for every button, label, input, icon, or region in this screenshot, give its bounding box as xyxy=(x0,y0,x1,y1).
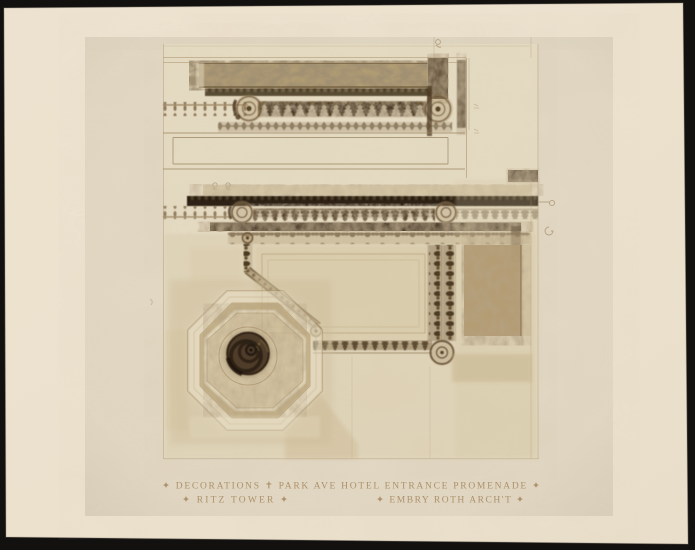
svg-text:✦ RITZ TOWER ✦: ✦ RITZ TOWER ✦ xyxy=(182,495,290,506)
svg-text:✦ DECORATIONS ✝ PARK AVE HOTEL: ✦ DECORATIONS ✝ PARK AVE HOTEL ENTRANCE … xyxy=(162,481,542,492)
svg-text:✦ EMBRY ROTH ARCH'T ✦: ✦ EMBRY ROTH ARCH'T ✦ xyxy=(376,495,526,506)
